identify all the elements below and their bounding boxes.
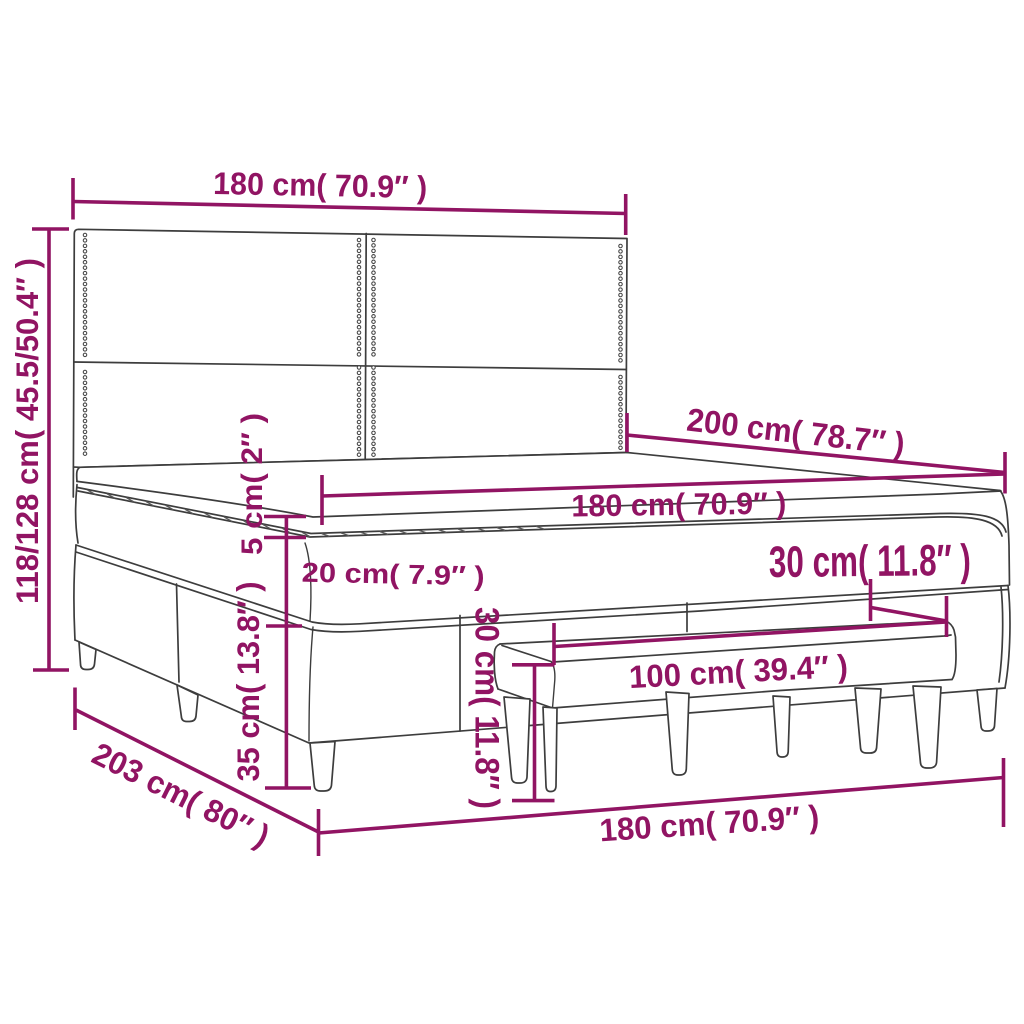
- svg-text:30 cm( 11.8″ ): 30 cm( 11.8″ ): [769, 536, 972, 587]
- svg-text:118/128 cm( 45.5/50.4″ ): 118/128 cm( 45.5/50.4″ ): [9, 258, 45, 604]
- svg-text:180 cm( 70.9″ ): 180 cm( 70.9″ ): [213, 165, 428, 205]
- svg-text:20 cm( 7.9″ ): 20 cm( 7.9″ ): [301, 557, 485, 592]
- svg-text:35 cm( 13.8″ ): 35 cm( 13.8″ ): [230, 582, 266, 782]
- svg-text:180 cm( 70.9″ ): 180 cm( 70.9″ ): [598, 798, 820, 848]
- svg-text:180 cm( 70.9″ ): 180 cm( 70.9″ ): [571, 486, 786, 524]
- svg-text:30 cm( 11.8″ ): 30 cm( 11.8″ ): [468, 607, 506, 809]
- svg-text:5 cm( 2″ ): 5 cm( 2″ ): [236, 413, 269, 555]
